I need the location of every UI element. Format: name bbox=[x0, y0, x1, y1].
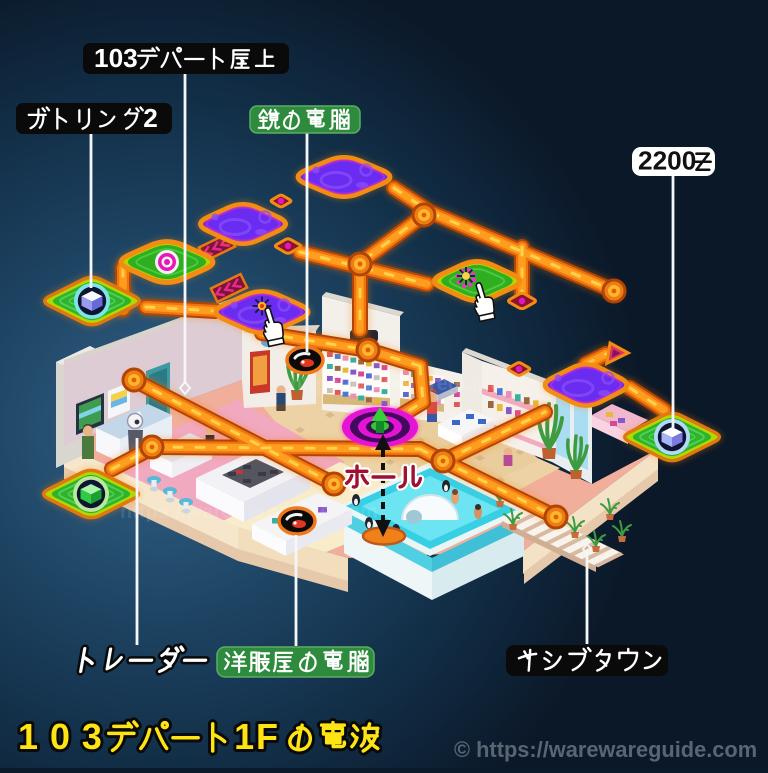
svg-text:2200: 2200 bbox=[638, 146, 696, 176]
svg-text:2: 2 bbox=[143, 103, 158, 133]
svg-text:https://warewareguide.com: https://warewareguide.com bbox=[120, 501, 378, 523]
svg-text:1F: 1F bbox=[234, 717, 280, 757]
svg-text:© https://warewareguide.com: © https://warewareguide.com bbox=[454, 737, 757, 762]
svg-text:103: 103 bbox=[18, 717, 114, 757]
svg-text:103: 103 bbox=[94, 43, 138, 73]
